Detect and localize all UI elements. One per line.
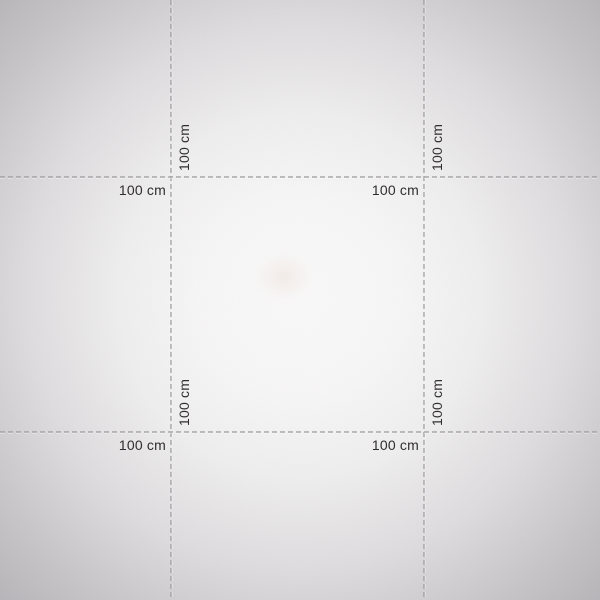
measurement-guide-lines xyxy=(0,0,600,600)
floorplan-canvas[interactable]: 100 cm100 cm100 cm100 cm100 cm100 cm100 … xyxy=(0,0,600,600)
